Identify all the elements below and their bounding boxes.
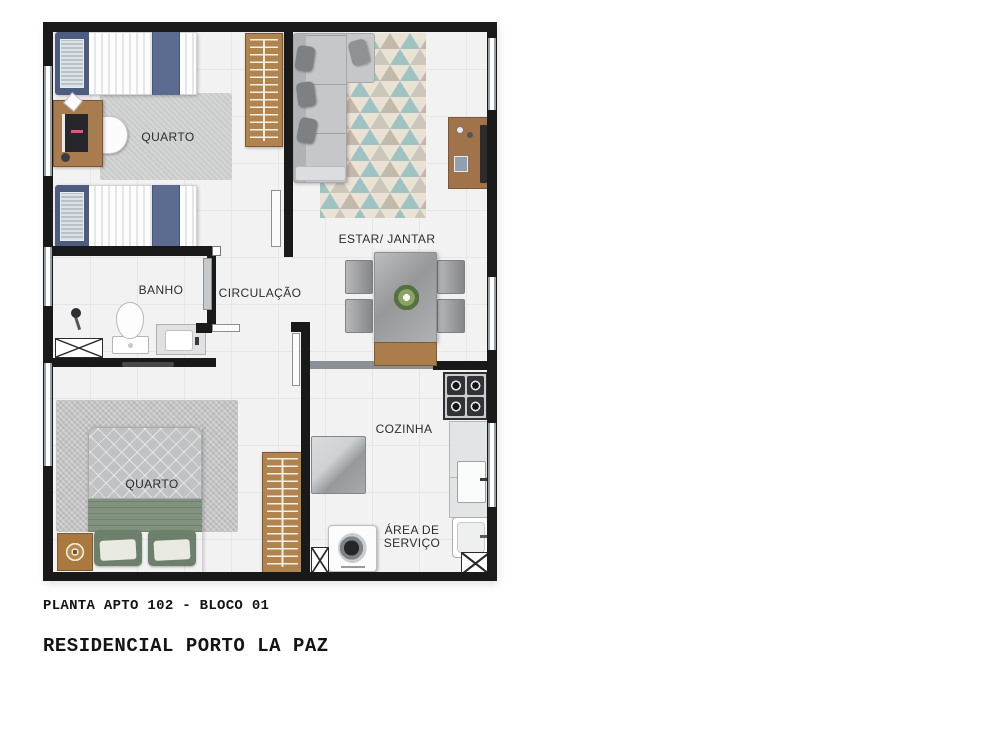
sofa-armrest (295, 166, 346, 181)
double-bed-icon (88, 427, 202, 573)
tv-stand-icon (448, 117, 490, 189)
bedroom2-door-icon (292, 333, 300, 386)
desk-lamp (61, 153, 70, 162)
fridge-icon (311, 436, 366, 494)
single-bed-icon (55, 185, 197, 248)
room-label-bathroom: BANHO (139, 283, 184, 297)
laptop-icon (62, 114, 88, 152)
wall-kitchen-left (301, 322, 310, 581)
burner (467, 397, 485, 416)
window-icon (44, 247, 52, 306)
bed-pillow (94, 530, 142, 566)
window-icon (488, 277, 496, 350)
burner (447, 397, 465, 416)
dining-chair-icon (345, 299, 373, 333)
bedroom1-door-icon (271, 190, 281, 247)
plan-title: PLANTA APTO 102 - BLOCO 01 (43, 598, 269, 614)
kitchen-counter-icon (449, 421, 492, 518)
wall-bottom (43, 572, 497, 581)
shower-box (55, 338, 103, 358)
kitchen-sink-icon (457, 461, 486, 503)
wall-kitchen-top (433, 361, 492, 370)
dining-chair-icon (345, 260, 373, 294)
wall-top (43, 22, 497, 32)
window-icon (44, 363, 52, 466)
room-label-service-area: ÁREA DE SERVIÇO (381, 524, 443, 550)
door-jamb (212, 246, 221, 256)
bed-headboard (55, 32, 89, 95)
burner (447, 376, 465, 395)
window-icon (488, 423, 496, 507)
decor-icon (467, 132, 473, 138)
vase-icon (456, 126, 464, 134)
bench-icon (374, 342, 437, 366)
hanger-rail (267, 458, 298, 567)
wall-stub (196, 323, 212, 333)
wardrobe-icon (262, 452, 303, 573)
room-label-living-dining: ESTAR/ JANTAR (339, 232, 436, 246)
tv-icon (480, 125, 487, 183)
room-label-kitchen: COZINHA (376, 422, 433, 436)
dining-table-icon (374, 252, 437, 343)
sofa-pillow (296, 81, 317, 108)
bed-pillow (60, 39, 84, 88)
burner (467, 376, 485, 395)
bed-runner (152, 32, 180, 95)
bed-headboard (55, 185, 89, 248)
photo-frame-icon (454, 156, 468, 172)
room-label-bedroom1: QUARTO (141, 130, 194, 144)
desk-icon (53, 100, 103, 167)
window-icon (488, 38, 496, 110)
bedroom2-door-jamb (212, 324, 240, 332)
mattress (88, 185, 197, 248)
dining-chair-icon (437, 260, 465, 294)
stove-icon (443, 372, 488, 420)
towel-bar-icon (122, 362, 174, 367)
bed-pillow (60, 192, 84, 241)
wall-bedroom1-bottom (43, 246, 212, 256)
plant-centerpiece-icon (391, 282, 422, 313)
bed-pillow (148, 530, 196, 566)
hanger-rail (250, 39, 278, 141)
bed-runner (152, 185, 180, 248)
round-side-table-icon (57, 533, 93, 571)
wardrobe-icon (245, 33, 283, 147)
bathroom-door-icon (203, 258, 212, 310)
shower-icon (71, 308, 81, 318)
dining-chair-icon (437, 299, 465, 333)
wall-living-divider (284, 22, 293, 257)
washing-machine-icon (328, 525, 377, 572)
single-bed-icon (55, 32, 197, 95)
floor-plan-page: QUARTO ESTAR/ JANTAR BANHO CIRCULAÇÃO QU… (0, 0, 1000, 735)
basin (165, 330, 193, 351)
mattress (88, 32, 197, 95)
room-label-bedroom2: QUARTO (125, 477, 178, 491)
faucet-icon (195, 337, 199, 345)
bed-blanket (88, 499, 202, 532)
room-label-hallway: CIRCULAÇÃO (219, 286, 302, 300)
column-marker (311, 547, 329, 574)
project-title: RESIDENCIAL PORTO LA PAZ (43, 635, 329, 657)
window-icon (44, 66, 52, 176)
toilet-icon (116, 302, 144, 339)
